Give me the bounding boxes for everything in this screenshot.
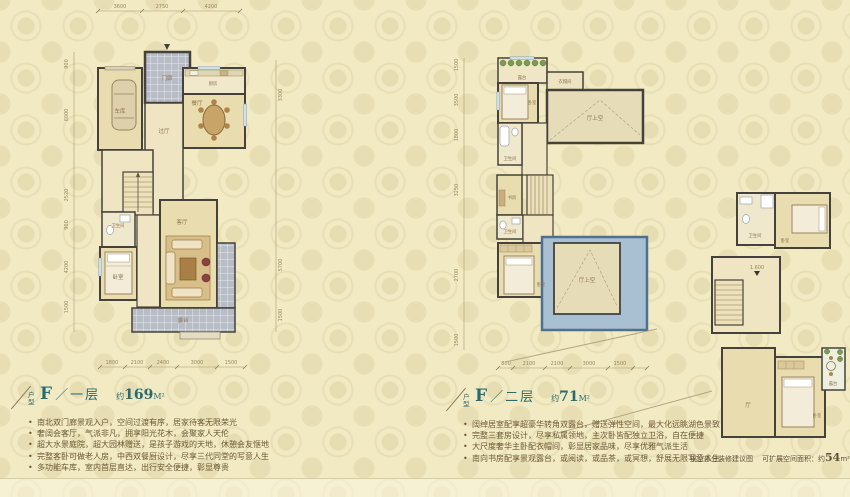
area-label: 约169M² [116, 387, 165, 403]
room-label: 衣帽间 [559, 78, 572, 85]
floor-name: 二层 [505, 386, 535, 405]
sink-icon [740, 197, 752, 204]
feature-bullet: 完整三套房设计，尽享私属领地，主次卧皆配独立卫浴，自在便捷 [463, 430, 753, 441]
dim-label: 2520 [64, 189, 70, 202]
bed-icon [782, 377, 814, 427]
caption-label: 挑空部分装修建议图 [690, 454, 753, 464]
dim-label: 1500 [225, 360, 238, 366]
dim-label: 1500 [454, 59, 460, 72]
dim-label: 5700 [278, 259, 284, 272]
feature-bullet: 南北双门廊景观入户，空间过渡有序，居家待客无限荣光 [28, 417, 318, 428]
room-label: 厅上空 [587, 114, 604, 122]
wardrobe-icon [778, 361, 804, 369]
dim-label: 1500 [614, 361, 627, 367]
sofa-set-icon [166, 236, 210, 300]
bed-icon [504, 256, 534, 294]
area-about: 约 [116, 392, 124, 401]
dim-label: 1800 [106, 360, 119, 366]
dim-label: 4200 [205, 4, 218, 10]
car-icon [112, 80, 136, 130]
dim-label: 2700 [454, 269, 460, 282]
dim-label: 900 [64, 220, 70, 230]
room-label: 客厅 [176, 218, 188, 226]
room-label: 卫生间 [749, 232, 762, 239]
desk-icon [499, 190, 505, 206]
room-label: 车库 [114, 107, 126, 115]
caption-expand-unit: m² [840, 455, 850, 463]
room-label: 卧室 [528, 99, 537, 106]
feature-bullet: 奢阔会客厅，气派非凡，拥享阳光花木，会聚家人天伦 [28, 428, 318, 439]
floor-name: 一层 [70, 384, 100, 403]
dim-label: 6000 [64, 109, 70, 122]
shower-icon [761, 195, 773, 208]
room-label: 卧室 [112, 273, 124, 281]
caption-expand-prefix: 可扩展空间面积：约 [762, 455, 825, 463]
title-separator: ／ [55, 384, 68, 403]
room-label: 卧室 [813, 412, 822, 419]
section-level1-title: 户型 F ／ 一层 约169M² [28, 384, 318, 408]
room-label: 厅上空 [579, 276, 596, 284]
dim-label: 3000 [583, 361, 596, 367]
feature-bullet: 多功能车库，室内首层直达，出行安全便捷，彰显尊贵 [28, 462, 318, 473]
room-label: 卫生间 [504, 155, 517, 162]
dim-label: 2100 [551, 361, 564, 367]
dim-label: 1500 [64, 301, 70, 314]
area-number: 71 [559, 389, 578, 405]
floorplan-brochure: 3600 2750 4200 1800 2100 2400 3000 1500 … [0, 0, 850, 497]
wardrobe-icon [500, 245, 532, 252]
section-level1: 户型 F ／ 一层 约169M² 南北双门廊景观入户，空间过渡有序，居家待客无限… [28, 384, 318, 473]
dim-label: 1500 [278, 309, 284, 322]
caption-expand-number: 54 [825, 451, 840, 464]
dim-label: 3600 [114, 4, 127, 10]
room-label: 餐厅 [191, 99, 203, 107]
room-label: 书房 [508, 194, 517, 201]
void-suggestion-caption: 挑空部分装修建议图 可扩展空间面积：约54m² [688, 451, 850, 464]
room-label: 露台 [177, 316, 189, 324]
feature-bullet: 完整客卧可做老人房，中西双餐厨设计，尽享三代同堂的写意人生 [28, 451, 318, 462]
toilet-icon [743, 215, 750, 224]
bed-icon [502, 85, 528, 119]
dim-label: 2100 [523, 361, 536, 367]
room-label: 厨房 [209, 80, 218, 87]
room-label: 卫生间 [112, 222, 125, 229]
unit-type-prefix: 户型 [463, 394, 472, 408]
bed-icon [105, 252, 132, 294]
dim-label: 4200 [64, 261, 70, 274]
area-label: 约71M² [551, 389, 590, 405]
room-label: 卧室 [537, 281, 546, 288]
corridor [137, 215, 160, 307]
feature-bullet: 阔绰居室配享超豪华转角双露台，赠送弹性空间，最大化远眺湖色景致 [463, 419, 753, 430]
unit-letter: F [40, 384, 53, 404]
staircase [715, 280, 743, 325]
floorplan-level1: 3600 2750 4200 1800 2100 2400 3000 1500 … [60, 0, 290, 375]
area-about: 约 [551, 394, 559, 403]
dim-label: 1500 [454, 334, 460, 347]
dim-label: 800 [501, 361, 511, 367]
corridor [522, 123, 547, 175]
area-number: 169 [124, 387, 153, 403]
room-label: 露台 [829, 380, 838, 387]
unit-letter: F [475, 386, 488, 406]
dim-label: 3300 [278, 89, 284, 102]
room-label: 门廊 [161, 74, 173, 82]
dim-label: 1800 [454, 129, 460, 142]
caption-expand-area: 可扩展空间面积：约54m² [762, 451, 850, 464]
unit-type-prefix: 户型 [28, 392, 37, 406]
dim-label: 2100 [131, 360, 144, 366]
dim-label: 2750 [156, 4, 169, 10]
area-unit: M² [153, 392, 164, 401]
area-unit: M² [579, 394, 590, 403]
section-level1-bullets: 南北双门廊景观入户，空间过渡有序，居家待客无限荣光 奢阔会客厅，气派非凡，拥享阳… [28, 417, 318, 473]
dim-label: 900 [64, 59, 70, 69]
kitchen-counter-icon [185, 70, 243, 76]
dim-label: 3500 [454, 94, 460, 107]
garage-door [105, 67, 135, 70]
entry-arrow-icon [164, 44, 170, 50]
terrace-right [217, 243, 235, 308]
title-separator: ／ [490, 386, 503, 405]
dim-label: 2400 [157, 360, 170, 366]
elevation-label: 1.600 [750, 265, 764, 271]
bottom-band [0, 478, 850, 497]
dim-label: 3250 [454, 184, 460, 197]
room-label: 卫生间 [504, 228, 517, 235]
feature-bullet: 超大水景庭院，超大园林赠送，是孩子游戏的天地，休憩会友惬地 [28, 439, 318, 450]
room-label: 露台 [518, 74, 527, 81]
room-label: 卧室 [781, 237, 790, 244]
dim-label: 3000 [191, 360, 204, 366]
bed-icon [792, 205, 827, 233]
room-label: 过厅 [158, 127, 170, 135]
floorplan-level2: 1500 3500 1800 3250 2700 1500 800 2100 2… [450, 40, 680, 395]
section-level2-title: 户型 F ／ 二层 约71M² [463, 386, 753, 410]
entry-step [180, 332, 220, 339]
